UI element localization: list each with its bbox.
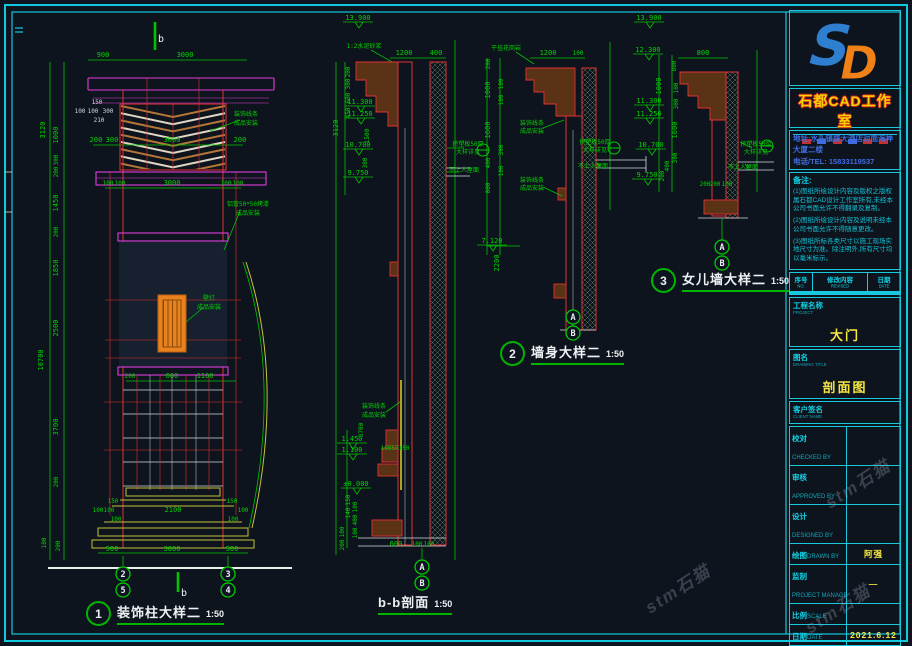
dim-text: 200 [710,181,721,188]
address-box: 地址:水头镇盛大酒店对面海神 大厦二楼 电话/TEL: 15833119537 [789,130,901,170]
annotation-text: 装饰线条 [234,110,258,118]
client-box: 客户签名 CLIENT NAME [789,401,901,424]
annotation-text: 成品安装 [520,184,544,192]
annotation-text: 装饰线条 [520,176,544,184]
dim-text: 100 [88,108,99,115]
dim-text: 100 [424,541,435,548]
dim-text: 200 [345,66,352,77]
dim-text: 300 [103,108,114,115]
dim-text: 10.700 [345,141,370,149]
project-value: 大门 [793,325,897,344]
dim-text: 800 [671,60,678,71]
address-line2: 大厦二楼 [793,144,897,155]
annotation-text: 成品安装 [234,119,258,127]
dim-text: 13.900 [345,14,370,22]
dim-text: 2500 [52,320,60,337]
annotation-text: 成品安装 [362,411,386,419]
dim-text: 3000 [164,545,181,553]
dim-text: 3000 [164,136,181,144]
dim-text: 600 [390,540,403,548]
annotation-text: 铝管50*50烤漆 [227,200,269,208]
dim-text: 400 [352,514,359,525]
dim-text: 300 [362,157,369,168]
grid-bubble-label: 5 [120,586,125,596]
dim-text: 1850 [52,260,60,277]
grid-bubble-label: A [419,563,424,573]
level-triangle-icon [646,118,654,124]
dim-text: 2200 [493,255,501,272]
notes-box: 备注: (1)图纸所绘设计内容及版权之版权属石都CAD设计工作室所有,未经本公司… [789,172,901,270]
dim-text: 200 [53,476,60,487]
dim-text: 400 [430,49,443,57]
svg-text:D: D [840,36,878,83]
dim-text: 2100 [165,506,182,514]
dim-text: 1000 [52,127,60,144]
address-line1: 地址:水头镇盛大酒店对面海神 [793,133,897,144]
dim-text: 13.900 [636,14,661,22]
wall-hatch [582,68,596,330]
annotation-text: 大样详见 [583,146,607,154]
client-label: 客户签名 [793,404,897,415]
dim-text: 100 [722,181,733,188]
dim-text: 1000 [655,78,663,95]
dim-text: 1:2水泥砂浆 [347,42,382,50]
dim-text: 800 [697,49,710,57]
wall-section [566,116,582,330]
cornice-section [526,68,575,116]
detail1-title: 装饰柱大样二 [117,602,201,621]
dim-text: 11.300 [347,98,372,106]
dim-text: 100 [41,537,48,548]
studio-logo-icon: S D [800,13,890,83]
dim-text: 1100 [197,372,214,380]
annotation-text: 成品安装 [236,209,260,217]
grid-bubble-label: A [719,243,724,253]
dim-text: 100 [75,108,86,115]
drawing-title-label: 图名 [793,352,897,363]
dim-text: 800 [485,182,492,193]
dim-text: 1200 [540,49,557,57]
annotation-text: 大样详见 [456,148,480,156]
dim-text: ±0.000 [343,480,368,488]
logo-box: S D [789,10,901,86]
detail3-scale: 1:50 [771,276,789,286]
detail2-scale: 1:50 [606,349,624,359]
dim-text: 100 [111,516,122,523]
fields-table: 校对CHECKED BY 审核APPROVED BY 设计DESIGNED BY… [789,426,901,646]
dim-text: 11.250 [636,110,661,118]
dim-text: 200 [339,539,346,550]
field-row-manager: 监制PROJECT MANAGER — [790,565,900,604]
dim-text: 100 [339,526,346,537]
annotation-text: 不上人屋面 [728,163,758,171]
detail3-number-bubble: 3 [651,268,676,293]
dim-text: 150 [108,498,119,505]
revision-table: 序号NO. 修改内容REVISED 日期DATE [789,272,901,295]
grid-bubble-label: B [570,329,575,339]
dim-text: 100 [238,507,249,514]
detail4-scale: 1:50 [434,599,452,609]
note-3: (3)图纸所标各类尺寸以施工现场实地尺寸为准。除注明外,所有尺寸均以毫米标示。 [793,238,897,264]
detail1-label: 1 装饰柱大样二 1:50 [86,601,224,626]
project-box: 工程名称 PROJECT 大门 [789,297,901,347]
drawing-title-value: 剖面图 [793,377,897,396]
dim-text: 3120 [39,122,47,139]
studio-name-box: 石都CAD工作室 [789,88,901,128]
note-1: (1)图纸所绘设计内容及版权之版权属石都CAD设计工作室所有,未经本公司书面允许… [793,188,897,214]
dim-text: 100 [381,445,392,452]
dim-text: 100 [115,180,126,187]
dim-text: 200 [53,166,60,177]
dim-text: 150 [345,494,352,505]
note-2: (2)图纸所绘设计内容及说明未经本公司书面允许不得随意更改。 [793,217,897,235]
field-row-approved: 审核APPROVED BY [790,466,900,505]
grid-bubble-label: 4 [225,586,230,596]
dim-text: 300 [106,136,119,144]
field-row-date: 日期DATE 2021.6.12 [790,625,900,646]
annotation-text: 装饰线条 [520,119,544,127]
dim-text: 100 [573,50,584,57]
dim-text: 500 [106,545,119,553]
grid-bubble-label: 3 [225,570,230,580]
detail1-scale: 1:50 [206,609,224,619]
notes-title: 备注: [793,175,897,186]
annotation-text: 挤塑板50厚 [579,138,610,146]
dim-text: 9.750 [347,169,368,177]
dim-text: 300 [53,154,60,165]
dim-text: 1600 [484,122,492,139]
dim-text: 3000 [164,179,181,187]
annotation-text: b [158,34,164,45]
dim-text: 150 [92,99,103,106]
dim-text: 7.120 [481,237,502,245]
dim-text: 100 [352,501,359,512]
cad-drawing-canvas: 9003000b150100100300210装饰线条成品安装200300300… [0,0,912,646]
annotation-text: 不上人屋面 [578,162,608,170]
dim-text: 150 [399,445,410,452]
wall-hatch [430,62,446,545]
annotation-text: 挤塑板50厚 [452,140,483,148]
drawing-title-box: 图名 DRAWING TITLE 剖面图 [789,349,901,399]
dim-text: 1.450 [341,435,362,443]
dim-text: 400 [485,157,492,168]
dim-text: 100 [498,94,505,105]
dim-text: 1000 [484,82,492,99]
field-row-designed: 设计DESIGNED BY [790,505,900,544]
dim-text: 1200 [396,49,413,57]
detail2-title: 墙身大样二 [531,342,601,361]
dim-text: 100 [498,165,505,176]
dim-text: 10700 [37,349,45,370]
rev-col-no: 序号 [790,274,812,284]
dim-text: 3700 [52,419,60,436]
phone: 电话/TEL: 15833119537 [793,156,897,167]
dim-text: 900 [97,51,110,59]
cad-sheet: 9003000b150100100300210装饰线条成品安装200300300… [0,0,912,646]
level-triangle-icon [648,149,656,155]
detail1-number-bubble: 1 [86,601,111,626]
annotation-text: 大样详见 [744,148,768,156]
dim-text: 1.100 [341,446,362,454]
annotation-text: 不上人屋面 [449,166,479,174]
grid-bubble-label: B [419,579,424,589]
dim-text: 100 [673,82,680,93]
level-triangle-icon [355,149,363,155]
dim-text: 100 [104,507,115,514]
detail4-label: b-b剖面 1:50 [378,592,452,615]
dim-text: 100 [93,507,104,514]
dim-text: 200 [53,226,60,237]
level-triangle-icon [353,488,361,494]
dim-text: 200 [125,373,136,380]
field-row-scale: 比例SCALE [790,604,900,625]
dim-text: 500 [226,545,239,553]
grid-bubble-label: 2 [120,570,125,580]
level-triangle-icon [357,118,365,124]
dim-text: 140 [345,507,352,518]
cornice-section [680,72,726,120]
dim-text: 9.750 [636,171,657,179]
dim-text: 200 [234,136,247,144]
annotation-text: 成品安装 [520,127,544,135]
dim-text: 100 [498,78,505,89]
dim-text: 210 [94,117,105,124]
dim-text: 11.250 [347,110,372,118]
dim-text: 100 [412,541,423,548]
field-row-drawn: 绘图DRAWN BY 阿强 [790,544,900,565]
column-base [126,488,220,496]
detail3-label: 3 女儿墙大样二 1:50 [651,268,789,293]
annotation-text: 装饰线条 [362,402,386,410]
rev-col-content: 修改内容 [813,274,867,284]
level-triangle-icon [349,454,357,460]
dim-text: 400 [664,160,671,171]
dim-text: 1600 [671,122,679,139]
title-block: S D 石都CAD工作室 地址:水头镇盛大酒店对面海神 大厦二楼 电话/TEL:… [789,10,901,636]
detail2-label: 2 墙身大样二 1:50 [500,341,624,366]
dim-text: 10.700 [638,141,663,149]
dim-text: 300 [672,152,679,163]
annotation-text: 挤塑板50厚 [740,140,771,148]
project-label: 工程名称 [793,300,897,311]
grid-bubble-label: A [570,313,575,323]
dim-text: 11.300 [636,97,661,105]
dim-text: 200 [485,58,492,69]
detail2-geometry [487,42,646,330]
dim-text: 1450 [52,195,60,212]
level-triangle-icon [645,54,653,60]
level-triangle-icon [644,179,652,185]
dim-text: 100 [352,527,359,538]
level-triangle-icon [355,177,363,183]
detail3-title: 女儿墙大样二 [682,269,766,288]
dim-text: 200 [659,170,666,181]
dim-text: 300 [673,98,680,109]
level-triangle-icon [646,22,654,28]
dim-text: 12.300 [635,46,660,54]
dim-text: 200 [55,540,62,551]
annotation-text: 成品安装 [197,303,221,311]
detail2-number-bubble: 2 [500,341,525,366]
rev-col-date: 日期 [868,274,900,284]
dim-text: 3120 [332,120,340,137]
level-triangle-icon [355,22,363,28]
dim-text: 600 [166,372,179,380]
studio-name: 石都CAD工作室 [793,91,897,135]
dim-text: 100 [233,180,244,187]
detail4-title: b-b剖面 [378,592,429,611]
field-row-checked: 校对CHECKED BY [790,427,900,466]
dim-text: 100 [221,180,232,187]
dim-text: 300 [345,78,352,89]
wall-hatch [726,72,738,218]
dim-text: 3000 [177,51,194,59]
dim-text: 300 [498,144,505,155]
annotation-text: 壁灯 [203,294,215,302]
rev-row [790,293,900,294]
dim-text: 200 [90,136,103,144]
dim-text: 150 [227,498,238,505]
annotation-text: b [181,588,187,599]
dim-text: 100 [103,180,114,187]
annotation-text: 干挂花岗岩 [491,44,521,52]
dim-text: 100 [228,516,239,523]
